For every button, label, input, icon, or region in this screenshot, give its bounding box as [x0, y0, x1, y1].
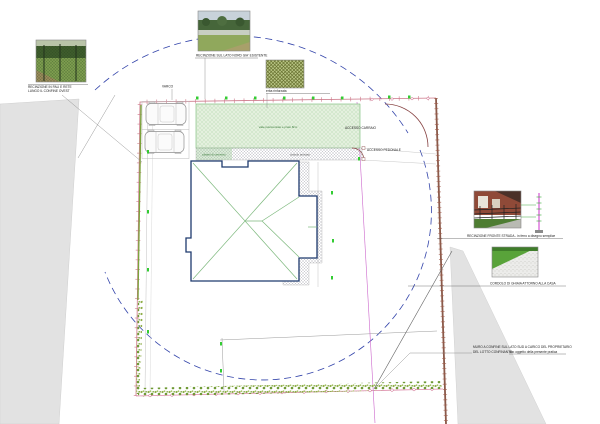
- wall-note-line1: MURO A CONFINE SUL LATO SUD A CARICO DEL…: [473, 345, 572, 349]
- house: [186, 161, 317, 281]
- paved-court: viale pavimentato e prato 8cm: [196, 104, 360, 148]
- car-top-view-1: [146, 102, 186, 126]
- pillars-label: pilastri di cemento: [202, 153, 226, 157]
- court-label: viale pavimentato e prato 8cm: [259, 125, 298, 129]
- photo-gravel-caption: CORDOLO DI GHIAIA ATTORNO ALLA CASA: [490, 282, 556, 286]
- varco-label: VARCO: [162, 85, 174, 89]
- photo-street-caption: RECINZIONE FRONTE STRADA - in ferro a di…: [467, 234, 555, 238]
- vehicle-gate-label: ACCESSO CARRAIO: [345, 126, 377, 130]
- photo-west-caption-line2: LUNGO IL CONFINE OVEST: [28, 89, 70, 93]
- site-plan-sheet: viale pavimentato e prato 8cm pilastri d…: [0, 0, 600, 424]
- cobble-label: ciottolo anticato: [290, 153, 310, 157]
- photo-north-caption: RECINZIONE SUL LATO NORD GIA' ESISTENTE: [196, 54, 267, 58]
- car-top-view-2: [145, 130, 184, 154]
- wall-note-line2-underlined: non oggetto della presente pratica: [509, 350, 557, 354]
- swatch-caption: erba rinforzata: [266, 89, 287, 93]
- wall-note-line2: DEL LOTTO CONFINANTE -: [473, 350, 514, 354]
- site-plan-drawing: viale pavimentato e prato 8cm pilastri d…: [0, 0, 600, 424]
- pedestrian-gate-label: ACCESSO PEDONALE: [367, 148, 401, 152]
- walkway-strip: pilastri di cemento ciottolo anticato: [196, 148, 362, 160]
